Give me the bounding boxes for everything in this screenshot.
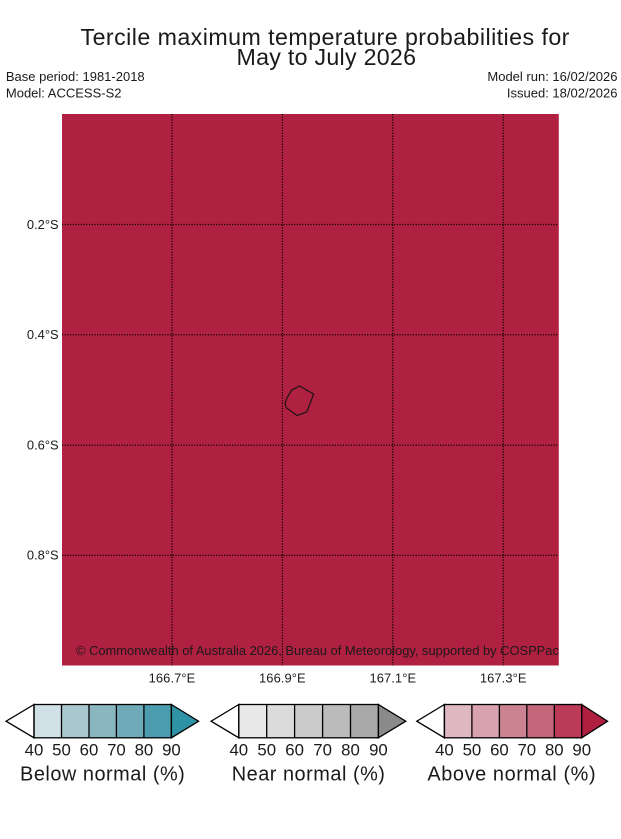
svg-text:60: 60 (285, 740, 304, 759)
svg-text:167.1°E: 167.1°E (369, 670, 416, 685)
svg-text:167.3°E: 167.3°E (480, 670, 527, 685)
svg-text:70: 70 (313, 740, 332, 759)
svg-text:40: 40 (25, 740, 44, 759)
svg-text:40: 40 (229, 740, 248, 759)
svg-text:Base period: 1981-2018: Base period: 1981-2018 (6, 69, 145, 84)
svg-text:166.7°E: 166.7°E (149, 670, 196, 685)
svg-text:© Commonwealth of Australia 20: © Commonwealth of Australia 2026, Bureau… (76, 643, 559, 658)
svg-text:Below normal (%): Below normal (%) (20, 764, 185, 786)
svg-text:50: 50 (52, 740, 71, 759)
svg-text:50: 50 (463, 740, 482, 759)
svg-text:0.6°S: 0.6°S (27, 437, 59, 452)
svg-text:90: 90 (162, 740, 181, 759)
svg-text:80: 80 (545, 740, 564, 759)
svg-text:80: 80 (135, 740, 154, 759)
svg-text:50: 50 (257, 740, 276, 759)
svg-text:90: 90 (572, 740, 591, 759)
svg-text:Issued: 18/02/2026: Issued: 18/02/2026 (507, 86, 618, 101)
svg-text:0.4°S: 0.4°S (27, 327, 59, 342)
svg-text:40: 40 (435, 740, 454, 759)
svg-text:80: 80 (341, 740, 360, 759)
svg-text:Model run: 16/02/2026: Model run: 16/02/2026 (487, 69, 617, 84)
svg-text:90: 90 (369, 740, 388, 759)
svg-text:Above normal (%): Above normal (%) (427, 764, 596, 786)
svg-text:0.2°S: 0.2°S (27, 217, 59, 232)
svg-text:Model: ACCESS-S2: Model: ACCESS-S2 (6, 86, 122, 101)
svg-text:70: 70 (517, 740, 536, 759)
svg-text:60: 60 (490, 740, 509, 759)
svg-text:166.9°E: 166.9°E (259, 670, 306, 685)
svg-text:Near normal (%): Near normal (%) (232, 764, 386, 786)
svg-text:0.8°S: 0.8°S (27, 548, 59, 563)
svg-text:60: 60 (80, 740, 99, 759)
svg-text:May to July 2026: May to July 2026 (237, 44, 417, 70)
svg-text:70: 70 (107, 740, 126, 759)
